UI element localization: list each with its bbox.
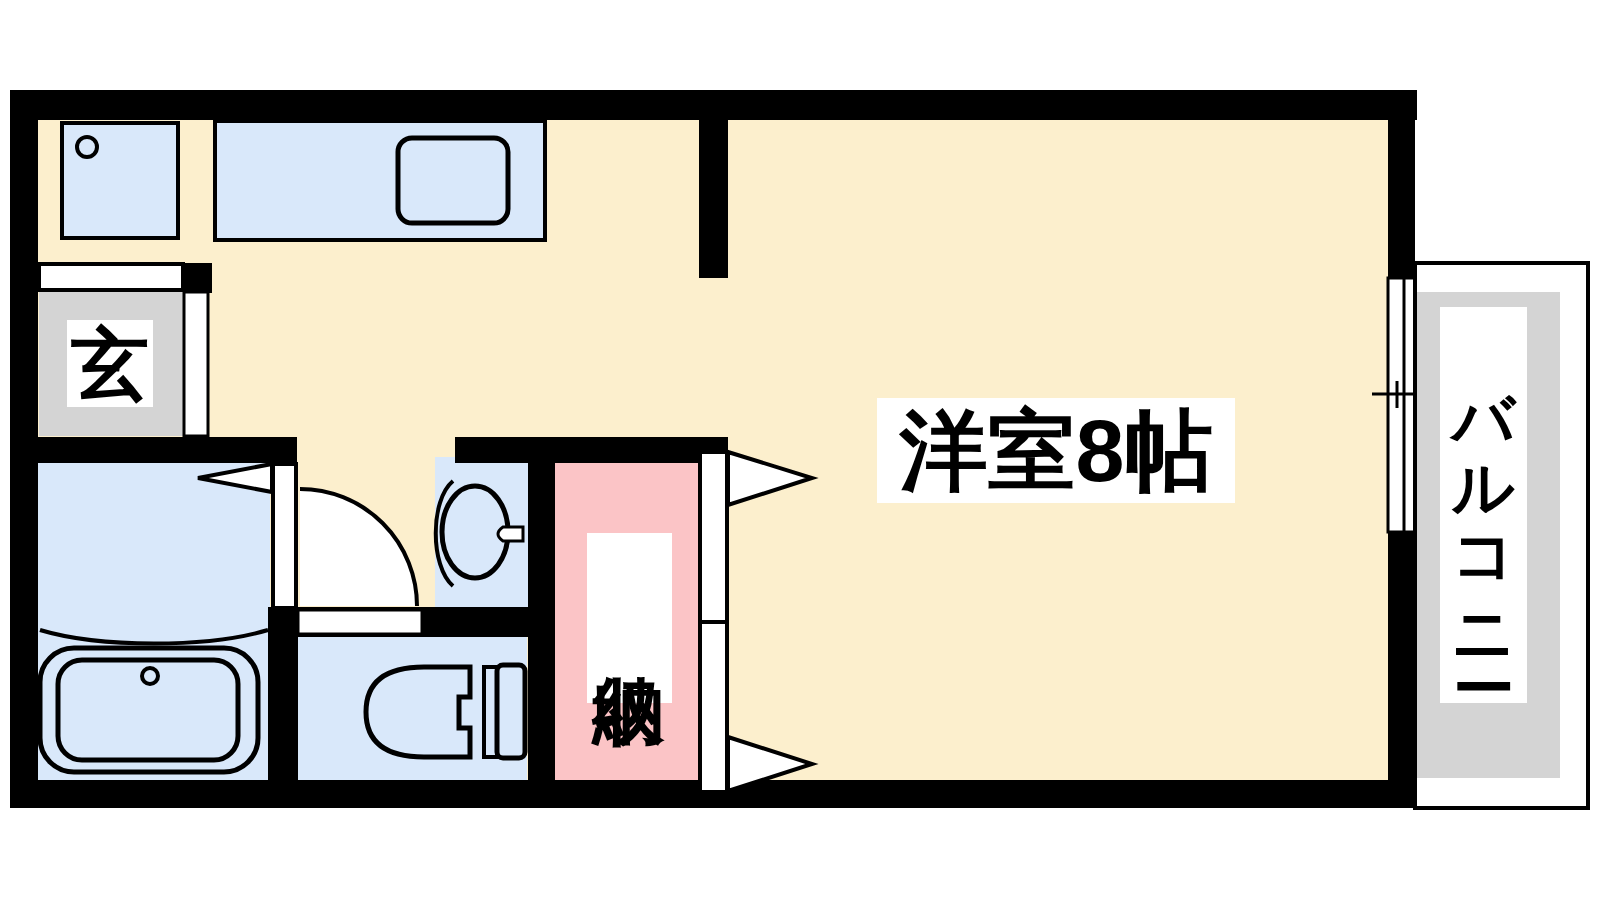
toilet-room (298, 637, 527, 780)
entrance-door (39, 264, 183, 290)
floor-plan: 洋室8帖 玄 収納 バルコニー (0, 0, 1600, 900)
western-room-label: 洋室8帖 (877, 398, 1235, 503)
balcony-label: バルコニー (1440, 307, 1527, 703)
kitchen-counter (215, 121, 545, 240)
wall-stub-kitchen (699, 118, 728, 278)
wall-top (10, 90, 1417, 120)
washing-machine-pan (62, 123, 178, 238)
storage-label: 収納 (587, 533, 672, 703)
washbasin-tap (498, 527, 523, 541)
floor-plan-drawing (0, 0, 1600, 900)
entrance-label: 玄 (67, 320, 153, 407)
entrance-step (184, 292, 208, 436)
toilet-tank (497, 665, 525, 758)
bathroom (38, 462, 270, 780)
wall-toilet-left (268, 607, 298, 780)
door-leaf (273, 464, 296, 608)
wall-closet-top (455, 437, 728, 463)
wall-right-lower (1388, 532, 1415, 780)
toilet-door (298, 610, 422, 634)
wall-right-upper (1388, 118, 1415, 278)
toilet (366, 665, 525, 758)
washbasin (435, 457, 528, 607)
wall-entrance-bottom (10, 437, 297, 463)
